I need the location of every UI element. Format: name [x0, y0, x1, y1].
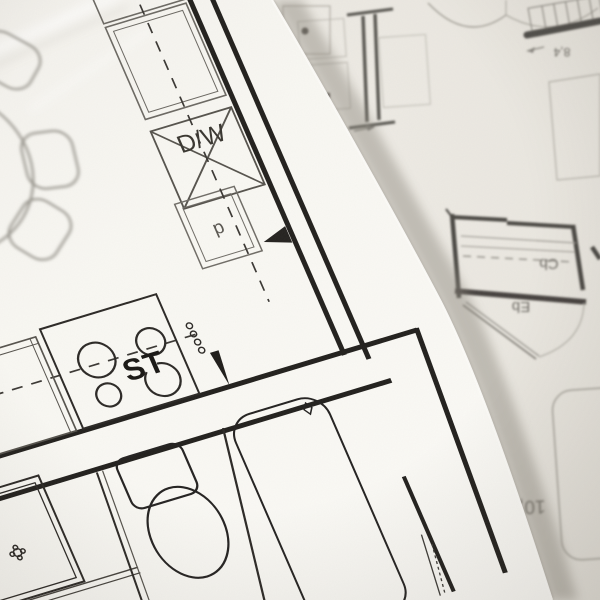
photo-vignette — [0, 0, 600, 600]
floor-plan-photo: 8,4 0,8 — [0, 0, 600, 600]
photo-canvas: 8,4 0,8 — [0, 0, 600, 600]
